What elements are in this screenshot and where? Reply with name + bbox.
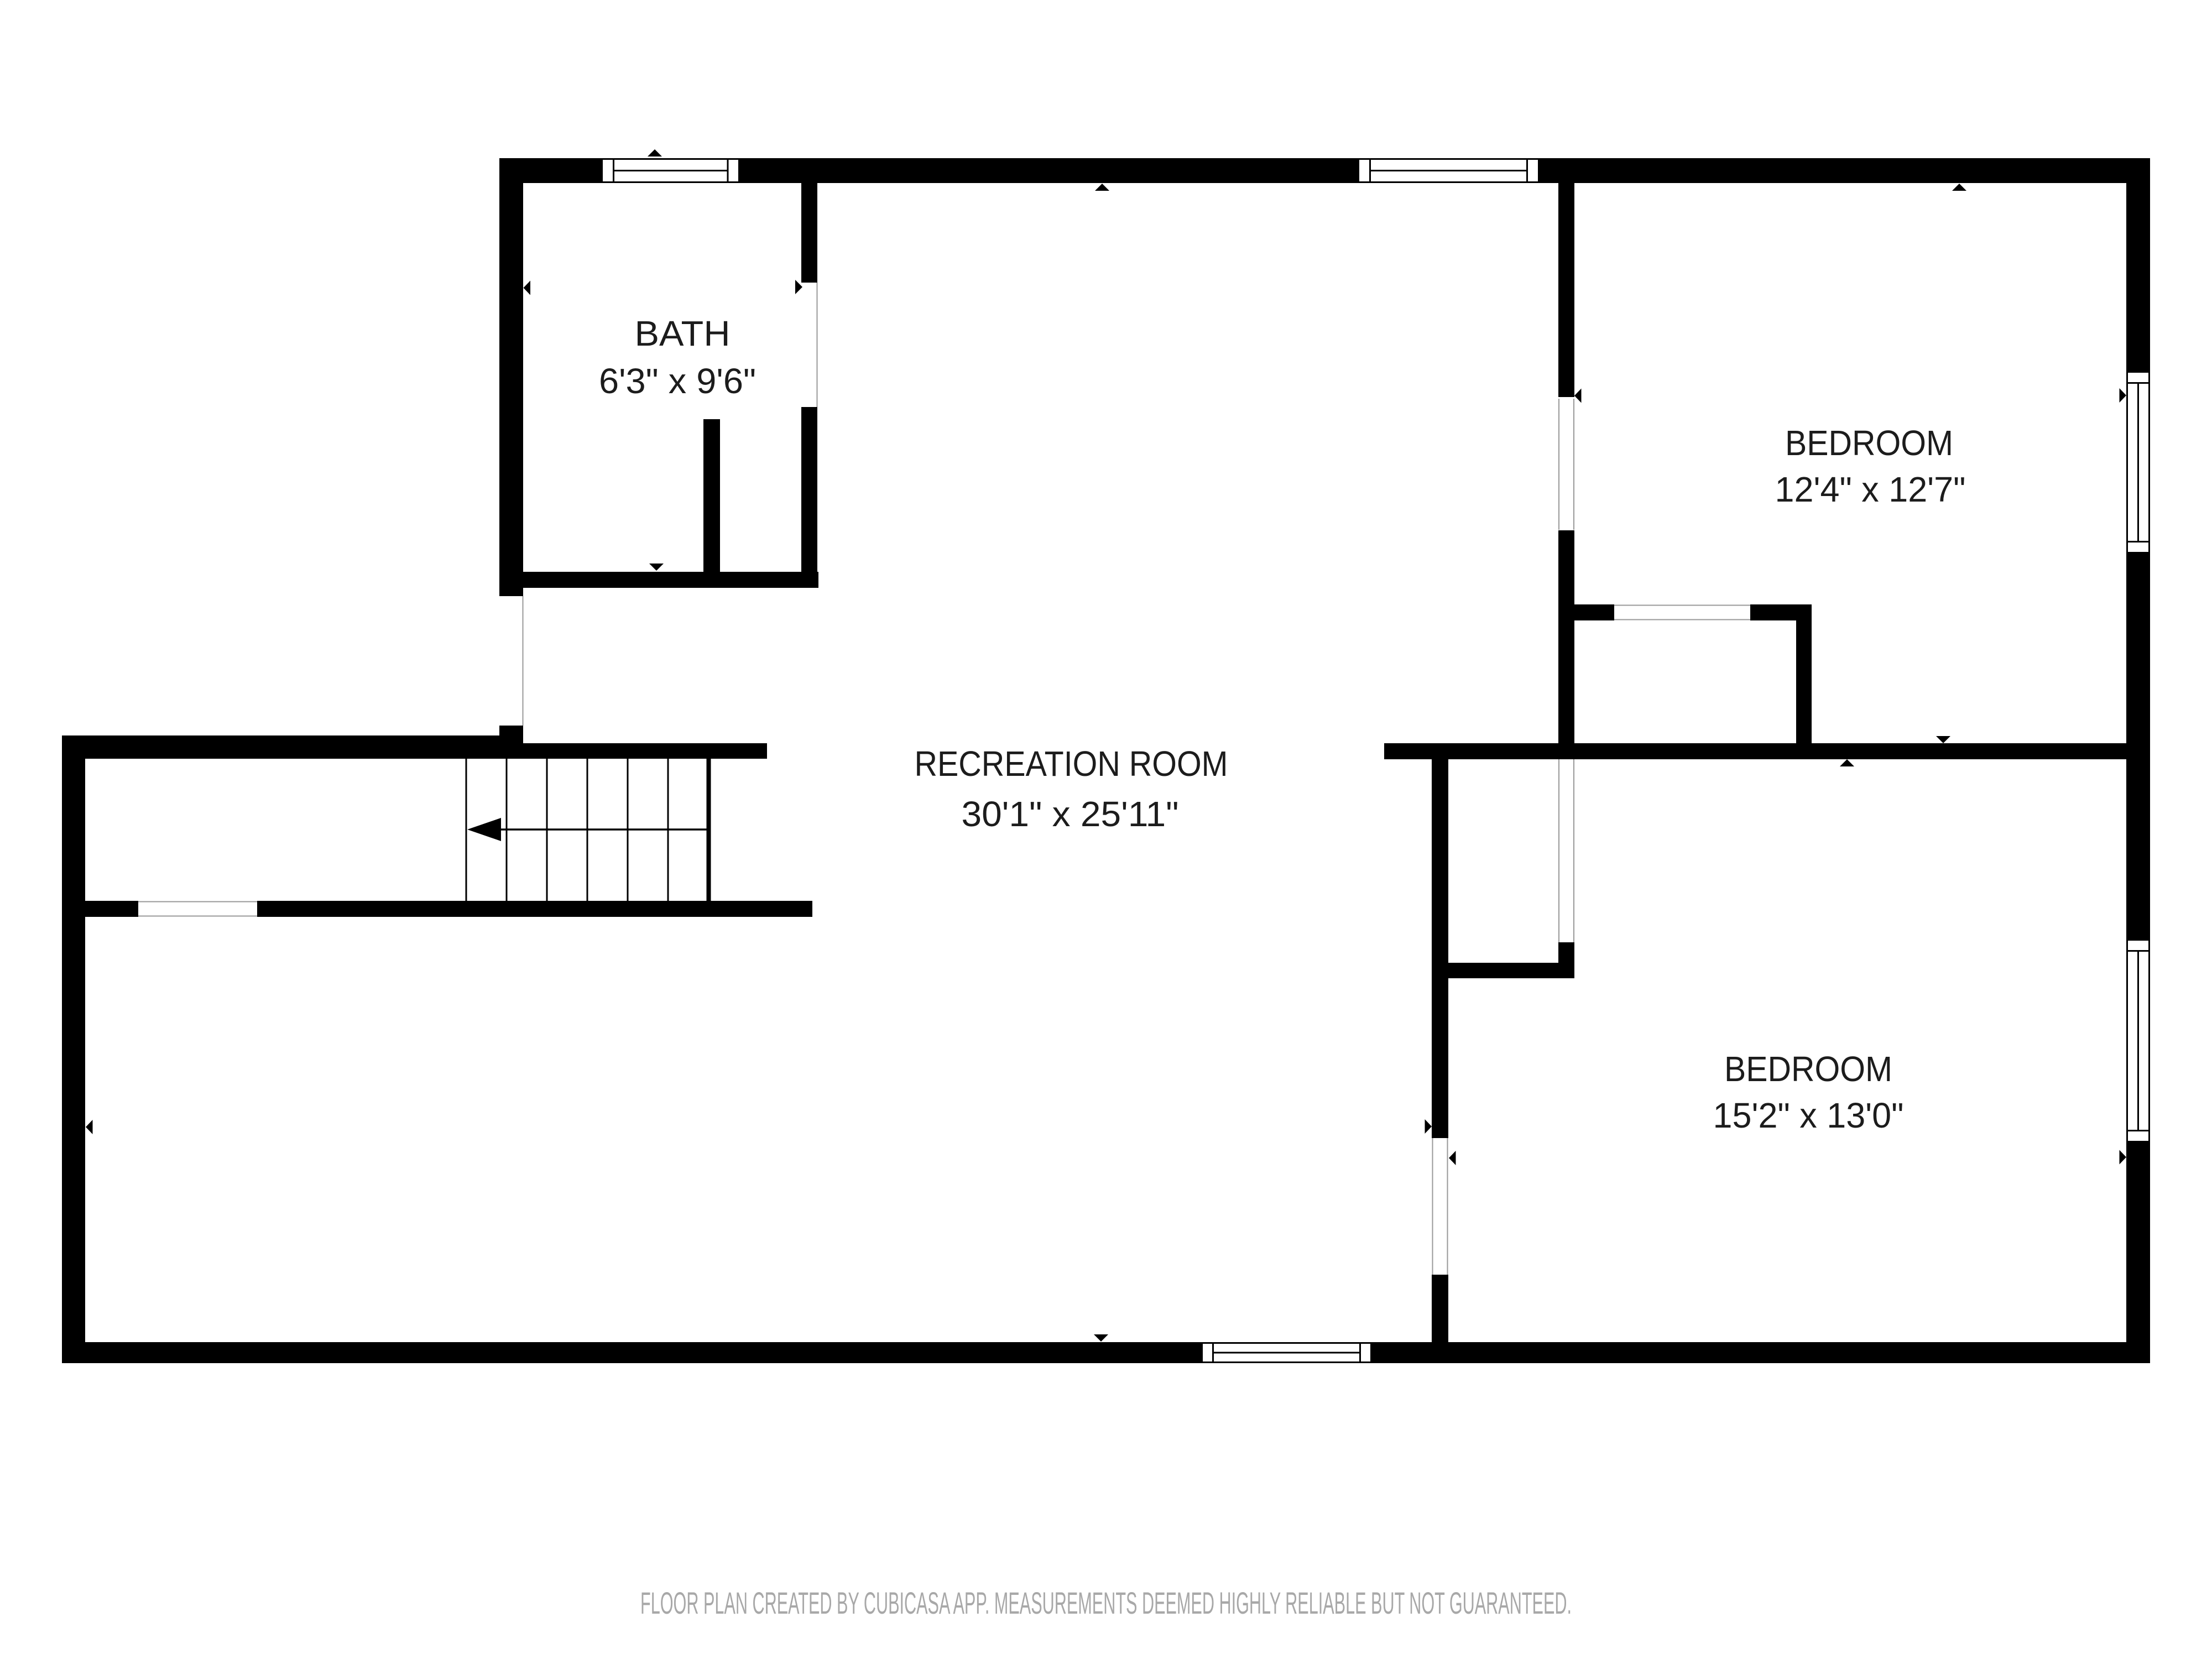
svg-text:30'1" x 25'11": 30'1" x 25'11": [962, 794, 1179, 834]
svg-text:12'4" x 12'7": 12'4" x 12'7": [1775, 469, 1966, 509]
svg-text:RECREATION ROOM: RECREATION ROOM: [915, 744, 1228, 784]
svg-text:15'2" x 13'0": 15'2" x 13'0": [1713, 1095, 1904, 1135]
svg-text:FLOOR PLAN CREATED BY CUBICASA: FLOOR PLAN CREATED BY CUBICASA APP. MEAS…: [640, 1585, 1572, 1620]
svg-text:BATH: BATH: [635, 314, 731, 353]
svg-text:6'3" x 9'6": 6'3" x 9'6": [599, 361, 756, 401]
svg-text:BEDROOM: BEDROOM: [1724, 1049, 1892, 1089]
svg-text:BEDROOM: BEDROOM: [1785, 423, 1953, 463]
